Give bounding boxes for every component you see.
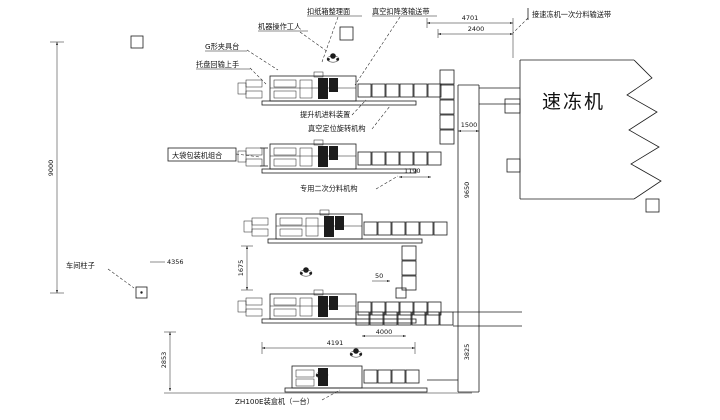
vertical-ladder-conveyor-top [440, 70, 454, 144]
svg-text:50: 50 [375, 272, 383, 280]
svg-text:2853: 2853 [160, 352, 168, 369]
label-workshop-column: 车间柱子 [66, 261, 134, 288]
dimension-3825: 3825 [463, 344, 471, 361]
freezer-label: 速冻机 [542, 91, 605, 113]
svg-text:1190: 1190 [404, 167, 421, 175]
dimension-1500: 1500 [458, 121, 479, 131]
dimension-1190: 1190 [399, 167, 431, 177]
svg-text:1675: 1675 [237, 260, 245, 277]
dimension-4000: 4000 [362, 328, 406, 336]
dimension-50: 50 [372, 272, 390, 281]
svg-text:G形夹具台: G形夹具台 [205, 42, 239, 51]
factory-layout-drawing: 速冻机 9000 4701 2400 1500 [0, 0, 720, 420]
svg-text:9650: 9650 [463, 182, 471, 199]
label-tray-return: 托盘回输上手 [196, 60, 266, 84]
svg-text:4000: 4000 [376, 328, 393, 336]
column-marker [340, 27, 353, 40]
svg-text:专用二次分料机构: 专用二次分料机构 [300, 184, 358, 193]
worker-icons [300, 53, 362, 378]
dimension-9000: 9000 [47, 42, 64, 293]
worker-icon [300, 267, 312, 276]
dimension-2400: 2400 [438, 18, 513, 58]
worker-icon [327, 53, 339, 62]
column-marker [507, 159, 520, 172]
packing-line-row-1 [238, 72, 441, 105]
dimension-1675: 1675 [237, 246, 253, 290]
packing-line-row-3 [244, 210, 447, 243]
worker-icon [350, 348, 362, 357]
dimension-9650: 9650 [463, 182, 471, 199]
freezer-outline [520, 60, 661, 199]
svg-text:4191: 4191 [327, 339, 344, 347]
svg-text:机器操作工人: 机器操作工人 [258, 22, 301, 31]
column-marker [646, 199, 659, 212]
svg-text:托盘回输上手: 托盘回输上手 [196, 60, 239, 69]
svg-text:大袋包装机组合: 大袋包装机组合 [172, 151, 222, 160]
svg-text:扣纸箱整理面: 扣纸箱整理面 [307, 7, 350, 16]
dimension-2853: 2853 [160, 332, 176, 391]
column-marker [131, 36, 143, 48]
label-freezer-feed-conveyor: 接速冻机一次分料输送带 [513, 8, 611, 33]
label-elevator-feed: 提升机进料装置 [300, 100, 366, 119]
svg-text:3825: 3825 [463, 344, 471, 361]
svg-text:真空定位旋转机构: 真空定位旋转机构 [308, 124, 366, 133]
svg-text:接速冻机一次分料输送带: 接速冻机一次分料输送带 [532, 10, 611, 19]
svg-text:2400: 2400 [468, 25, 485, 33]
dimension-4191: 4191 [262, 339, 415, 354]
freezer-link-conveyor [479, 88, 520, 113]
label-machine-operators: 机器操作工人 [258, 22, 328, 52]
label-vacuum-drop-conveyor: 真空扣降落输送带 [355, 7, 437, 85]
label-secondary-divider: 专用二次分料机构 [300, 176, 398, 193]
svg-text:4356: 4356 [167, 258, 184, 266]
svg-text:1500: 1500 [461, 121, 478, 129]
svg-text:9000: 9000 [47, 160, 55, 177]
cad-drawing-canvas: 速冻机 9000 4701 2400 1500 [0, 0, 720, 420]
packing-line-row-4 [238, 290, 441, 323]
svg-text:ZH100E装盒机（一台）: ZH100E装盒机（一台） [235, 397, 314, 406]
svg-text:真空扣降落输送带: 真空扣降落输送带 [372, 7, 430, 16]
dimension-4356: 4356 [150, 258, 184, 266]
label-bag-packer-group: 大袋包装机组合 [168, 148, 268, 166]
zh100-cartoner-row [285, 366, 458, 392]
svg-text:车间柱子: 车间柱子 [66, 261, 95, 270]
row3-drop-ladder-conveyor [396, 246, 416, 298]
svg-text:4701: 4701 [462, 14, 479, 22]
svg-text:提升机进料装置: 提升机进料装置 [300, 110, 350, 119]
